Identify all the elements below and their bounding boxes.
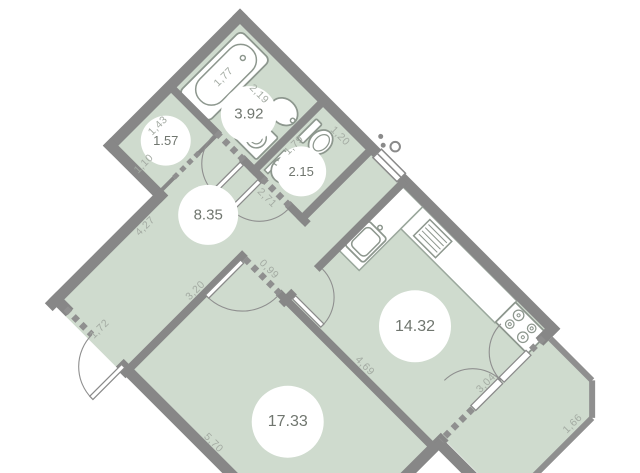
svg-text:1.57: 1.57 — [153, 133, 178, 148]
svg-text:3.92: 3.92 — [234, 106, 263, 123]
svg-text:17.33: 17.33 — [268, 413, 308, 430]
floor-plan-page: 1.573.922.158.3514.3217.331,772,191,431,… — [0, 0, 640, 473]
floor-plan-image: 1.573.922.158.3514.3217.331,772,191,431,… — [0, 0, 640, 473]
floor-plan-svg: 1.573.922.158.3514.3217.331,772,191,431,… — [0, 0, 640, 473]
svg-text:8.35: 8.35 — [194, 206, 223, 223]
svg-text:2.15: 2.15 — [289, 164, 314, 179]
svg-text:14.32: 14.32 — [395, 318, 435, 335]
